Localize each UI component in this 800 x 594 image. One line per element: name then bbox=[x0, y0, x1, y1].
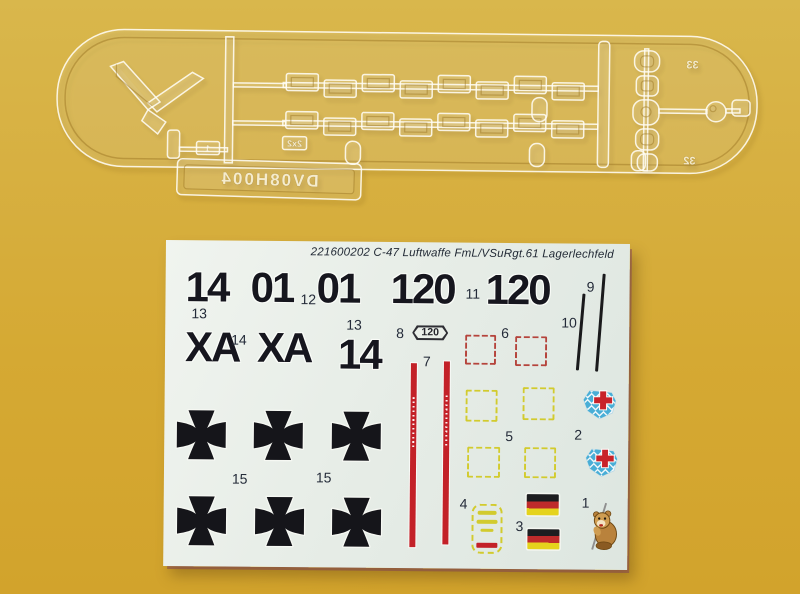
ref-3: 3 bbox=[515, 519, 523, 533]
ref-4: 4 bbox=[460, 497, 468, 511]
black-trim-stripe-9 bbox=[595, 274, 606, 372]
sprue-runner-left bbox=[224, 37, 234, 163]
bavarian-crest-a bbox=[582, 389, 616, 420]
decal-sheet: 221600202 C-47 Luftwaffe FmL/VSuRgt.61 L… bbox=[163, 240, 630, 570]
dashed-marker-5c bbox=[467, 447, 500, 478]
ref-8: 8 bbox=[396, 326, 404, 340]
dashed-marker-5b bbox=[522, 387, 554, 420]
mould-code-plate: DV08H004 bbox=[177, 159, 362, 200]
iron-cross-5 bbox=[253, 495, 305, 548]
ref-5: 5 bbox=[505, 429, 513, 443]
iron-cross-1 bbox=[175, 408, 227, 461]
ref-12: 12 bbox=[300, 292, 316, 306]
red-stripe-left bbox=[409, 363, 417, 547]
dashed-marker-6b bbox=[515, 336, 547, 366]
clear-sprue: 1 bbox=[40, 18, 780, 218]
speed-placard: 120 bbox=[412, 325, 448, 340]
iron-cross-4 bbox=[175, 494, 227, 547]
walkway-bar-1 bbox=[478, 511, 497, 515]
code-xa-b: XA bbox=[257, 327, 312, 369]
code-14b: 14 bbox=[338, 334, 381, 376]
iron-cross-6 bbox=[330, 495, 382, 548]
unit-mascot-emblem bbox=[587, 502, 618, 551]
ref-6: 6 bbox=[501, 326, 509, 340]
ref-7: 7 bbox=[423, 354, 431, 368]
ref-2: 2 bbox=[574, 428, 582, 442]
walkway-marking bbox=[471, 504, 502, 554]
ref-14: 14 bbox=[231, 333, 247, 347]
ref-10: 10 bbox=[561, 315, 577, 329]
german-flag-b bbox=[527, 529, 559, 549]
sprue-part-number-32: 32 bbox=[683, 155, 695, 167]
walkway-bar-3 bbox=[480, 529, 493, 532]
walkway-bar-2 bbox=[477, 520, 498, 524]
ref-13b: 13 bbox=[346, 318, 362, 332]
code-120b: 120 bbox=[485, 269, 549, 312]
mould-code-text: DV08H004 bbox=[219, 169, 319, 191]
code-120a: 120 bbox=[390, 268, 454, 311]
code-01b: 01 bbox=[316, 267, 359, 309]
walkway-red-bar bbox=[476, 543, 497, 548]
sprue-part-number-33: 33 bbox=[686, 59, 698, 71]
code-14: 14 bbox=[185, 266, 228, 308]
speed-placard-value: 120 bbox=[421, 327, 439, 338]
iron-cross-2 bbox=[252, 409, 304, 462]
bavarian-crest-b bbox=[585, 447, 618, 478]
decal-sheet-title: 221600202 C-47 Luftwaffe FmL/VSuRgt.61 L… bbox=[311, 247, 614, 261]
black-trim-stripe-10 bbox=[576, 294, 586, 371]
iron-cross-3 bbox=[330, 409, 382, 462]
sprue-runner-right bbox=[597, 41, 610, 167]
german-flag-a bbox=[527, 494, 559, 515]
photo-scene: 1 bbox=[0, 0, 800, 594]
dashed-marker-5a bbox=[465, 390, 497, 422]
dashed-marker-6a bbox=[465, 335, 496, 365]
ref-9: 9 bbox=[587, 280, 595, 294]
ref-13a: 13 bbox=[191, 306, 207, 320]
ref-15b: 15 bbox=[316, 470, 332, 484]
dashed-marker-5d bbox=[524, 447, 556, 478]
ref-15a: 15 bbox=[232, 472, 248, 486]
red-stripe-right bbox=[442, 361, 450, 544]
ref-11: 11 bbox=[465, 287, 480, 301]
code-01a: 01 bbox=[250, 267, 293, 309]
window-grid-mark: 2x2 bbox=[287, 139, 302, 149]
